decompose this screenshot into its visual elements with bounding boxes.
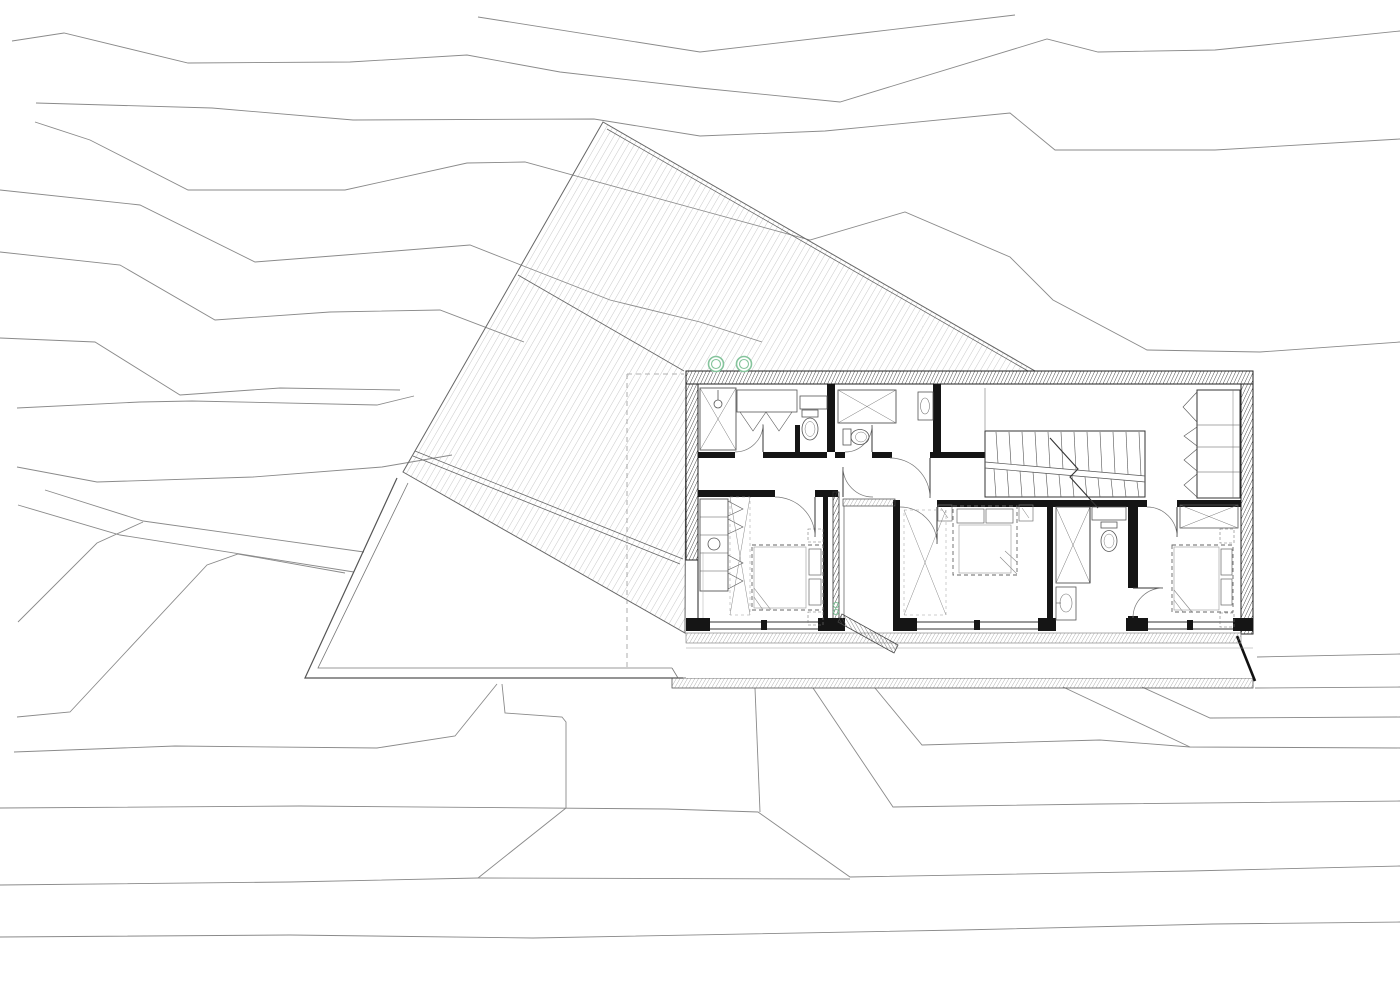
floor-plan	[686, 371, 1255, 681]
partition-hall-top	[835, 452, 845, 458]
exterior-wall-right	[1241, 384, 1253, 634]
contour-line	[478, 684, 566, 878]
second-floor-plan-drawing	[0, 0, 1400, 990]
wall-bottom-segment	[1126, 618, 1148, 631]
window-mullion	[761, 620, 767, 630]
contour-line	[17, 396, 414, 408]
wall-bottom-segment	[1233, 618, 1253, 631]
partition-hall-top	[763, 452, 827, 458]
wall-bottom-segment	[893, 618, 917, 631]
contour-line	[0, 922, 1400, 938]
partition-wc-stub	[795, 425, 800, 452]
contour-line	[36, 103, 1400, 150]
contour-line	[0, 878, 850, 885]
contour-line	[45, 490, 364, 552]
contour-line	[1142, 687, 1400, 718]
partition-center-left	[833, 492, 839, 621]
skylight-vent	[737, 357, 752, 372]
exterior-wall-left	[686, 384, 698, 560]
partition-bath2-right	[933, 384, 941, 452]
terrace-section-band	[672, 678, 1253, 688]
contour-line	[18, 522, 143, 622]
window-mullion	[974, 620, 980, 630]
contour-line	[755, 688, 760, 812]
partition-bedroom2-left	[893, 500, 900, 621]
contour-line	[17, 554, 345, 717]
contour-line	[17, 455, 452, 482]
contour-line	[1255, 687, 1400, 688]
partition-hall-top	[698, 452, 735, 458]
partition-hall-top	[930, 452, 985, 458]
partition-master-top	[698, 490, 775, 497]
contour-line	[0, 252, 524, 342]
window-mullion	[1187, 620, 1193, 630]
partition-bedroom3-top	[1138, 500, 1147, 507]
window-sill-band	[686, 633, 1241, 643]
contour-line	[478, 15, 1015, 52]
partition-hall-top	[872, 452, 892, 458]
contour-line	[0, 806, 1400, 877]
partition-bath-divider	[827, 384, 835, 452]
wardrobe-landing	[1197, 390, 1240, 498]
contour-line	[875, 688, 1400, 748]
partition-bath3-right	[1128, 500, 1138, 588]
contour-line	[12, 31, 1400, 102]
contour-line	[1063, 687, 1190, 747]
skylight-vent	[709, 357, 724, 372]
partition-bath3-left	[1047, 500, 1053, 621]
plan-background	[686, 371, 1253, 678]
wall-bottom-segment	[686, 618, 710, 631]
contour-line	[18, 505, 354, 572]
contour-line	[1257, 654, 1400, 657]
partition-master-right	[823, 492, 828, 621]
exterior-wall-top	[686, 371, 1253, 384]
floor-plan-page	[0, 0, 1400, 990]
partition-bedroom3-top	[1177, 500, 1241, 507]
wall-bottom-segment	[1038, 618, 1056, 631]
balustrade-strip	[843, 499, 895, 506]
contour-line	[0, 338, 400, 395]
